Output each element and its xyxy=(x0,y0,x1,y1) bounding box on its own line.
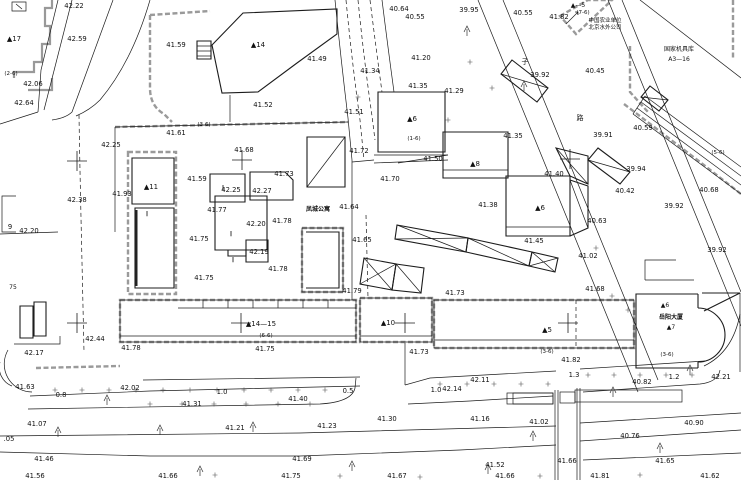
map-label: 39.92 xyxy=(530,71,549,79)
map-label: 1.0 xyxy=(431,386,442,394)
map-label: 40.90 xyxy=(684,419,703,427)
elevation-labels: 42.2242.59▲17(2-6)42.0642.6441.59▲14(3-6… xyxy=(4,2,731,480)
plus-mark xyxy=(308,402,313,407)
map-label: 41.02 xyxy=(578,252,597,260)
plus-mark xyxy=(490,86,495,91)
map-label: ▲6 xyxy=(661,302,670,309)
map-label: 41.46 xyxy=(34,455,53,463)
map-label: 41.07 xyxy=(27,420,46,428)
map-label: 39.92 xyxy=(707,246,726,254)
map-label: ‖ xyxy=(146,211,149,217)
plus-mark xyxy=(418,475,423,480)
map-label: ▲8 xyxy=(470,160,480,168)
map-label: 41.49 xyxy=(307,55,326,63)
map-label: 1.0 xyxy=(217,388,228,396)
map-label: 41.50 xyxy=(423,155,442,163)
map-label: 42.17 xyxy=(24,349,43,357)
map-label: 中国农业单位 xyxy=(588,16,622,24)
screened-walls xyxy=(14,0,52,90)
map-label: (7-6) xyxy=(576,10,589,16)
map-label: 39.95 xyxy=(459,6,478,14)
plus-mark xyxy=(148,402,153,407)
plus-mark xyxy=(465,382,470,387)
map-label: ▲14—15 xyxy=(246,320,276,328)
map-canvas: 42.2242.59▲17(2-6)42.0642.6441.59▲14(3-6… xyxy=(0,0,741,480)
map-label: 40.63 xyxy=(587,217,606,225)
map-label: (3-6) xyxy=(660,352,673,358)
plus-mark xyxy=(492,382,497,387)
map-label: 41.29 xyxy=(444,87,463,95)
map-label: 40.59 xyxy=(633,124,652,132)
map-label: 北京水外公司 xyxy=(588,23,621,31)
map-label: 41.16 xyxy=(470,415,489,423)
map-label: 岳阳大厦 xyxy=(659,313,684,321)
map-label: 42.25 xyxy=(101,141,120,149)
map-label: 41.35 xyxy=(408,82,427,90)
map-label: .05 xyxy=(4,435,15,443)
map-label: 41.52 xyxy=(485,461,504,469)
plus-mark xyxy=(296,388,301,393)
map-label: ‖ xyxy=(230,231,233,237)
map-label: 41.59 xyxy=(166,41,185,49)
plus-mark xyxy=(612,373,617,378)
map-label: ‖ xyxy=(232,257,235,263)
map-label: 41.63 xyxy=(15,383,34,391)
map-label: 41.35 xyxy=(503,132,522,140)
map-label: (6-6) xyxy=(259,333,272,339)
map-label: 41.67 xyxy=(387,472,406,480)
map-label: 40.68 xyxy=(699,186,718,194)
map-label: (3-6) xyxy=(197,122,210,128)
map-label: 41.31 xyxy=(182,400,201,408)
map-label: 41.69 xyxy=(292,455,311,463)
map-label: 凤城公寓 xyxy=(306,205,330,213)
plus-mark xyxy=(446,118,451,123)
map-label: 41.82 xyxy=(549,13,568,21)
map-label: 41.82 xyxy=(561,356,580,364)
map-label: ▲6 xyxy=(535,204,545,212)
sidewalk-plus-marks xyxy=(53,60,695,480)
map-label: (3-6) xyxy=(540,349,553,355)
map-label: 9 xyxy=(8,223,12,231)
plus-mark xyxy=(244,402,249,407)
map-label: 41.75 xyxy=(194,274,213,282)
map-label: 42.02 xyxy=(120,384,139,392)
map-label: ▲17 xyxy=(7,35,21,43)
map-label: 41.72 xyxy=(349,147,368,155)
tree-symbol xyxy=(464,26,470,36)
map-label: ▲7 xyxy=(667,324,676,331)
map-label: 41.20 xyxy=(411,54,430,62)
map-label: 41.75 xyxy=(281,472,300,480)
map-label: 41.77 xyxy=(207,206,226,214)
survey-cross xyxy=(67,151,87,171)
map-label: 41.75 xyxy=(189,235,208,243)
tree-symbol xyxy=(521,81,527,91)
survey-cross xyxy=(558,313,578,333)
plus-mark xyxy=(161,388,166,393)
map-label: 42.27 xyxy=(252,187,271,195)
plus-mark xyxy=(276,402,281,407)
map-label: 42.38 xyxy=(67,196,86,204)
plus-mark xyxy=(80,388,85,393)
map-label: 41.78 xyxy=(272,217,291,225)
tree-symbol xyxy=(157,425,163,435)
map-label: (5-6) xyxy=(711,150,724,156)
map-label: 41.81 xyxy=(590,472,609,480)
plus-mark xyxy=(546,382,551,387)
map-label: 41.73 xyxy=(274,170,293,178)
map-label: 42.59 xyxy=(67,35,86,43)
map-label: 41.75 xyxy=(255,345,274,353)
plus-mark xyxy=(638,473,643,478)
map-label: 42.11 xyxy=(470,376,489,384)
map-label: 子 xyxy=(522,58,529,66)
plus-mark xyxy=(594,246,599,251)
map-label: 42.22 xyxy=(64,2,83,10)
map-label: 41.23 xyxy=(317,422,336,430)
map-label: 41.59 xyxy=(187,175,206,183)
map-label: ▲11 xyxy=(144,183,158,191)
map-label: 41.30 xyxy=(377,415,396,423)
map-label: 39.92 xyxy=(664,202,683,210)
plus-mark xyxy=(468,60,473,65)
map-label: 41.65 xyxy=(352,236,371,244)
map-label: 75 xyxy=(9,284,17,291)
map-label: 40.64 xyxy=(389,5,408,13)
map-label: 41.68 xyxy=(585,285,604,293)
map-label: 路 xyxy=(577,113,584,122)
map-label: 42.14 xyxy=(442,385,461,393)
map-label: 0.8 xyxy=(56,391,67,399)
map-label: ‖ xyxy=(222,185,225,191)
map-label: 41.70 xyxy=(380,175,399,183)
map-label: 1.3 xyxy=(569,371,580,379)
map-label: 国家机具库 xyxy=(664,45,694,53)
plus-mark xyxy=(107,388,112,393)
plus-mark xyxy=(323,388,328,393)
map-label: 1.2 xyxy=(669,373,680,381)
map-label: 41.78 xyxy=(268,265,287,273)
survey-map: 42.2242.59▲17(2-6)42.0642.6441.59▲14(3-6… xyxy=(0,0,741,480)
map-label: 42.06 xyxy=(23,80,42,88)
plus-mark xyxy=(538,474,543,479)
map-label: 41.56 xyxy=(25,472,44,480)
tree-symbol xyxy=(250,422,256,432)
survey-cross xyxy=(560,149,580,169)
map-label: 42.64 xyxy=(14,99,33,107)
map-label: 41.78 xyxy=(121,344,140,352)
tree-symbol xyxy=(530,431,536,441)
map-label: 42.20 xyxy=(19,227,38,235)
map-label: 41.45 xyxy=(524,237,543,245)
map-label: 41.02 xyxy=(529,418,548,426)
map-label: ▲5 xyxy=(542,326,552,334)
map-label: 42.20 xyxy=(246,220,265,228)
map-label: 41.40 xyxy=(544,170,563,178)
tree-symbol xyxy=(610,387,616,397)
plus-mark xyxy=(188,388,193,393)
map-label: 41.66 xyxy=(495,472,514,480)
tree-symbol xyxy=(349,461,355,471)
map-label: 42.44 xyxy=(85,335,104,343)
plus-mark xyxy=(242,388,247,393)
map-label: 41.64 xyxy=(339,203,358,211)
map-label: 40.82 xyxy=(632,378,651,386)
map-label: ▲14 xyxy=(251,41,266,49)
tree-symbol xyxy=(104,395,110,405)
map-label: (2-6) xyxy=(4,71,17,77)
map-label: 40.55 xyxy=(405,13,424,21)
map-label: 41.73 xyxy=(409,348,428,356)
tree-symbol xyxy=(197,466,203,476)
map-label: 39.94 xyxy=(626,165,645,173)
map-label: 42.21 xyxy=(711,373,730,381)
map-label: (1-6) xyxy=(407,136,420,142)
map-label: 41.38 xyxy=(478,201,497,209)
map-label: 42.19 xyxy=(249,248,268,256)
map-label: 41.62 xyxy=(700,472,719,480)
map-label: 41.79 xyxy=(342,287,361,295)
survey-grid-crosses xyxy=(67,149,580,333)
map-label: 41.51 xyxy=(344,108,363,116)
map-label: 40.76 xyxy=(620,432,639,440)
plus-mark xyxy=(338,474,343,479)
map-label: 41.68 xyxy=(234,146,253,154)
map-label: ▲10 xyxy=(381,319,395,327)
map-label: 41.21 xyxy=(225,424,244,432)
map-label: 40.45 xyxy=(585,67,604,75)
compound-boundaries xyxy=(36,0,741,368)
map-label: 40.42 xyxy=(615,187,634,195)
plus-mark xyxy=(626,308,631,313)
plus-mark xyxy=(356,95,361,100)
map-label: ▲—5 xyxy=(571,2,586,9)
map-label: 41.93 xyxy=(112,190,131,198)
map-label: ▲6 xyxy=(407,115,417,123)
tree-symbol xyxy=(657,443,663,453)
plus-mark xyxy=(519,382,524,387)
map-label: 41.61 xyxy=(166,129,185,137)
map-label: 41.65 xyxy=(655,457,674,465)
map-label: 39.91 xyxy=(593,131,612,139)
map-label: 41.52 xyxy=(253,101,272,109)
map-label: 41.34 xyxy=(360,67,379,75)
plus-mark xyxy=(213,473,218,478)
map-label: 40.55 xyxy=(513,9,532,17)
plus-mark xyxy=(610,294,615,299)
plus-mark xyxy=(586,373,591,378)
map-label: 41.40 xyxy=(288,395,307,403)
map-label: A3—16 xyxy=(668,56,690,63)
map-label: 41.73 xyxy=(445,289,464,297)
map-label: 0.5 xyxy=(343,387,354,395)
plus-mark xyxy=(638,373,643,378)
map-label: 41.66 xyxy=(158,472,177,480)
map-label: 41.66 xyxy=(557,457,576,465)
survey-cross xyxy=(67,313,87,333)
survey-cross xyxy=(395,313,415,333)
